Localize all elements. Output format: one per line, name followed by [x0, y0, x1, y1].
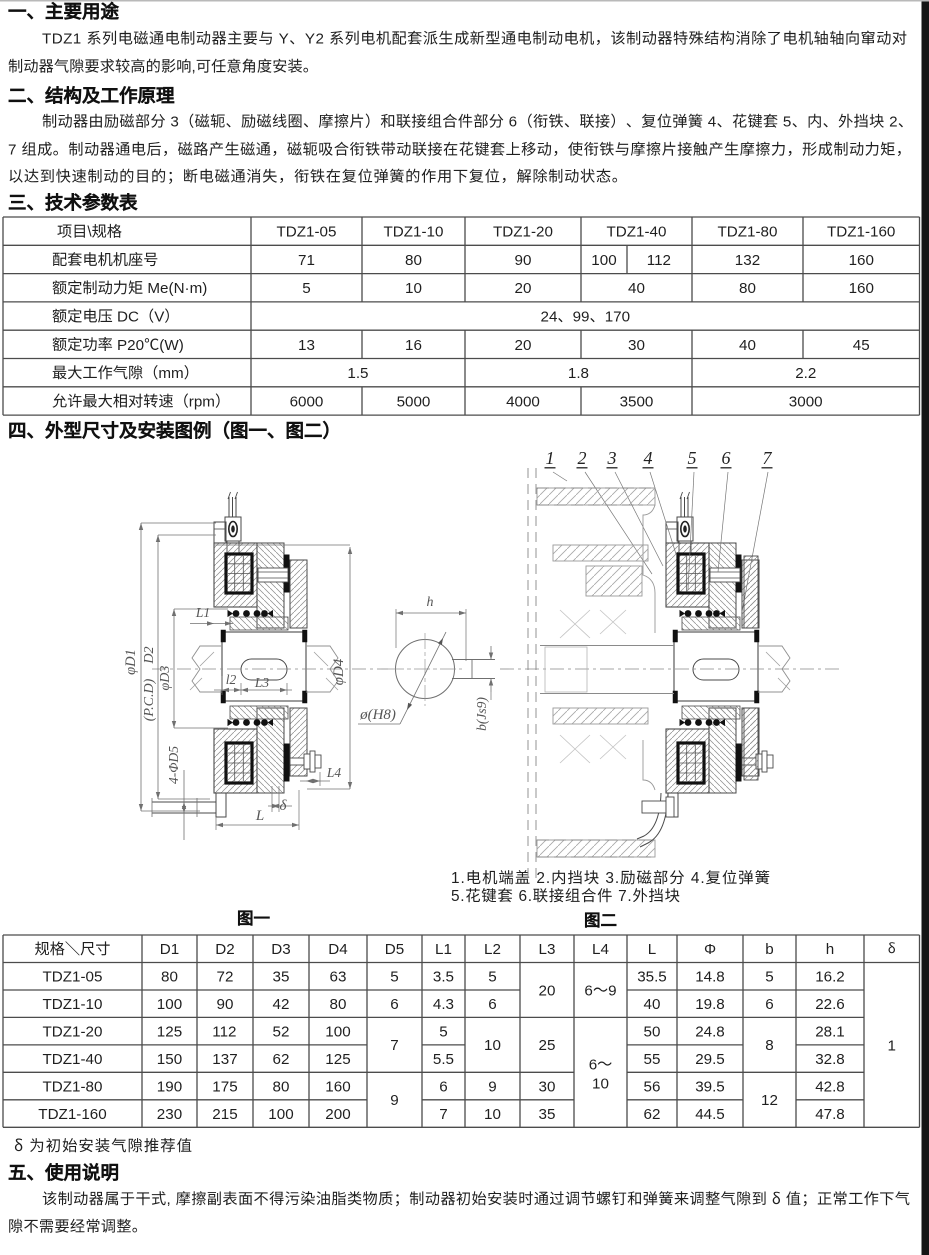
svg-text:L3: L3 [254, 675, 270, 690]
svg-text:80: 80 [405, 252, 422, 269]
svg-text:ø(H8): ø(H8) [359, 707, 396, 723]
svg-text:2.2: 2.2 [795, 365, 816, 382]
svg-text:132: 132 [735, 252, 760, 269]
svg-text:TDZ1-05: TDZ1-05 [43, 969, 103, 986]
svg-text:10: 10 [484, 1106, 501, 1123]
svg-text:7: 7 [439, 1106, 447, 1123]
svg-text:h: h [427, 595, 434, 610]
svg-text:5000: 5000 [397, 393, 431, 410]
svg-text:L1: L1 [195, 605, 210, 620]
svg-text:100: 100 [591, 252, 616, 269]
svg-text:62: 62 [644, 1106, 661, 1123]
svg-text:9: 9 [488, 1079, 496, 1096]
svg-text:40: 40 [739, 337, 756, 354]
svg-text:δ: δ [280, 798, 288, 814]
svg-text:200: 200 [325, 1106, 350, 1123]
svg-text:29.5: 29.5 [695, 1051, 725, 1068]
svg-text:13: 13 [298, 337, 315, 354]
svg-text:25: 25 [539, 1037, 556, 1054]
svg-text:125: 125 [157, 1024, 182, 1041]
svg-text:5.: 5. [451, 888, 465, 905]
svg-text:Φ: Φ [704, 941, 716, 958]
svg-text:TDZ1-160: TDZ1-160 [827, 224, 895, 241]
svg-text:20: 20 [539, 982, 556, 999]
svg-text:160: 160 [325, 1079, 350, 1096]
svg-text:4: 4 [644, 448, 653, 468]
svg-text:L1: L1 [435, 941, 452, 958]
svg-text:(P.C.D): (P.C.D) [142, 678, 157, 721]
svg-text:1.5: 1.5 [347, 365, 368, 382]
svg-text:6: 6 [584, 982, 592, 999]
svg-text:TDZ1: TDZ1 [42, 31, 86, 48]
svg-text:230: 230 [157, 1106, 182, 1123]
svg-text:112: 112 [212, 1024, 236, 1041]
svg-text:8: 8 [765, 1037, 773, 1054]
svg-text:D3: D3 [271, 941, 290, 958]
svg-text:4.3: 4.3 [433, 996, 454, 1013]
svg-text:4.: 4. [686, 870, 706, 887]
svg-text:3.: 3. [600, 870, 620, 887]
svg-text:9: 9 [608, 982, 616, 999]
svg-text:D2: D2 [215, 941, 234, 958]
svg-text:L3: L3 [539, 941, 556, 958]
svg-text:22.6: 22.6 [815, 996, 845, 1013]
svg-text:2: 2 [885, 114, 898, 131]
svg-text:5: 5 [688, 448, 697, 468]
svg-text:7: 7 [8, 142, 22, 159]
svg-text:5: 5 [488, 969, 496, 986]
svg-text:3: 3 [166, 114, 179, 131]
svg-text:Y: Y [274, 31, 289, 48]
svg-text:125: 125 [325, 1051, 350, 1068]
svg-text:32.8: 32.8 [815, 1051, 845, 1068]
svg-text:h: h [826, 941, 834, 958]
svg-text:112: 112 [647, 252, 671, 269]
svg-text:3: 3 [607, 448, 617, 468]
svg-text:39.5: 39.5 [695, 1079, 725, 1096]
svg-text:6: 6 [504, 114, 517, 131]
svg-text:5.5: 5.5 [433, 1051, 454, 1068]
svg-text:TDZ1-160: TDZ1-160 [38, 1106, 106, 1123]
svg-text:160: 160 [849, 252, 874, 269]
svg-text:56: 56 [644, 1079, 661, 1096]
svg-text:71: 71 [298, 252, 315, 269]
svg-text:137: 137 [212, 1051, 237, 1068]
svg-text:28.1: 28.1 [815, 1024, 845, 1041]
svg-text:9: 9 [390, 1092, 398, 1109]
svg-text:72: 72 [217, 969, 234, 986]
svg-text:1: 1 [546, 448, 555, 468]
svg-text:4: 4 [703, 114, 716, 131]
svg-text:45: 45 [853, 337, 870, 354]
svg-text:5: 5 [765, 969, 773, 986]
svg-text:100: 100 [325, 1024, 350, 1041]
svg-text:,: , [192, 59, 196, 76]
svg-text:L2: L2 [484, 941, 501, 958]
svg-text:(W): (W) [159, 337, 183, 354]
svg-text:42: 42 [273, 996, 290, 1013]
svg-text:6: 6 [439, 1079, 447, 1096]
svg-text:24.8: 24.8 [695, 1024, 725, 1041]
svg-text:7.: 7. [613, 888, 632, 905]
svg-text:35.5: 35.5 [637, 969, 667, 986]
svg-text:150: 150 [157, 1051, 182, 1068]
svg-text:6: 6 [488, 996, 496, 1013]
svg-text:Y2: Y2 [305, 31, 329, 48]
svg-text:100: 100 [157, 996, 182, 1013]
svg-text:1.8: 1.8 [568, 365, 589, 382]
svg-text:20: 20 [515, 337, 532, 354]
svg-text:,: , [167, 1191, 176, 1208]
svg-text:mm: mm [158, 365, 183, 382]
svg-text:3500: 3500 [620, 393, 654, 410]
svg-text:40: 40 [628, 280, 645, 297]
svg-text:TDZ1-10: TDZ1-10 [384, 224, 444, 241]
svg-text:5: 5 [302, 280, 310, 297]
svg-text:φD3: φD3 [158, 666, 173, 691]
svg-text:7: 7 [763, 448, 773, 468]
svg-text:16.2: 16.2 [815, 969, 845, 986]
svg-text:Me(N·m): Me(N·m) [143, 280, 207, 297]
svg-text:2.: 2. [531, 870, 551, 887]
svg-text:80: 80 [273, 1079, 290, 1096]
svg-text:6: 6 [589, 1056, 597, 1073]
svg-text:6000: 6000 [290, 393, 324, 410]
svg-text:19.8: 19.8 [695, 996, 725, 1013]
svg-text:2: 2 [578, 448, 587, 468]
svg-text:D2: D2 [142, 646, 157, 664]
svg-text:\: \ [87, 224, 92, 241]
svg-text:P20: P20 [113, 337, 144, 354]
svg-text:10: 10 [592, 1075, 609, 1092]
svg-text:6: 6 [722, 448, 731, 468]
svg-text:l2: l2 [226, 672, 237, 687]
svg-text:99: 99 [573, 308, 590, 325]
svg-text:3.5: 3.5 [433, 969, 454, 986]
svg-text:16: 16 [405, 337, 422, 354]
svg-text:35: 35 [273, 969, 290, 986]
svg-text:14.8: 14.8 [695, 969, 725, 986]
svg-text:TDZ1-05: TDZ1-05 [277, 224, 337, 241]
svg-text:24: 24 [541, 308, 558, 325]
svg-text:6: 6 [765, 996, 773, 1013]
svg-text:TDZ1-10: TDZ1-10 [43, 996, 103, 1013]
svg-text:190: 190 [157, 1079, 182, 1096]
svg-text:TDZ1-20: TDZ1-20 [43, 1024, 103, 1041]
svg-text:160: 160 [849, 280, 874, 297]
svg-text:L: L [648, 941, 656, 958]
svg-text:1.: 1. [451, 870, 466, 887]
svg-text:100: 100 [268, 1106, 293, 1123]
svg-text:6.: 6. [514, 888, 533, 905]
svg-text:90: 90 [217, 996, 234, 1013]
svg-text:D4: D4 [328, 941, 347, 958]
svg-text:44.5: 44.5 [695, 1106, 725, 1123]
svg-text:170: 170 [605, 308, 630, 325]
svg-text:D5: D5 [385, 941, 404, 958]
svg-text:47.8: 47.8 [815, 1106, 845, 1123]
svg-text:5: 5 [439, 1024, 447, 1041]
svg-text:DC: DC [113, 308, 139, 325]
svg-text:V: V [154, 308, 165, 325]
svg-text:90: 90 [515, 252, 532, 269]
svg-text:TDZ1-20: TDZ1-20 [493, 224, 553, 241]
svg-text:20: 20 [515, 280, 532, 297]
svg-text:175: 175 [212, 1079, 237, 1096]
svg-text:3000: 3000 [789, 393, 823, 410]
svg-text:5: 5 [390, 969, 398, 986]
svg-text:L4: L4 [592, 941, 609, 958]
svg-text:42.8: 42.8 [815, 1079, 845, 1096]
svg-text:30: 30 [628, 337, 645, 354]
svg-text:4-ΦD5: 4-ΦD5 [166, 746, 181, 784]
svg-text:1: 1 [888, 1037, 896, 1054]
svg-text:rpm: rpm [189, 393, 215, 410]
svg-text:4000: 4000 [506, 393, 540, 410]
svg-text:TDZ1-80: TDZ1-80 [43, 1079, 103, 1096]
svg-text:80: 80 [739, 280, 756, 297]
svg-text:10: 10 [405, 280, 422, 297]
svg-text:b(Js9): b(Js9) [474, 697, 489, 731]
svg-text:TDZ1-40: TDZ1-40 [43, 1051, 103, 1068]
svg-text:40: 40 [644, 996, 661, 1013]
svg-text:63: 63 [330, 969, 347, 986]
svg-text:12: 12 [761, 1092, 778, 1109]
svg-text:80: 80 [161, 969, 178, 986]
svg-text:215: 215 [212, 1106, 237, 1123]
svg-text:φD1: φD1 [123, 649, 139, 675]
svg-text:80: 80 [330, 996, 347, 1013]
svg-text:D1: D1 [160, 941, 179, 958]
svg-text:52: 52 [273, 1024, 290, 1041]
svg-text:30: 30 [539, 1079, 556, 1096]
svg-text:35: 35 [539, 1106, 556, 1123]
svg-text:TDZ1-80: TDZ1-80 [718, 224, 778, 241]
svg-text:TDZ1-40: TDZ1-40 [607, 224, 667, 241]
svg-text:b: b [765, 941, 773, 958]
svg-text:62: 62 [273, 1051, 290, 1068]
svg-text:50: 50 [644, 1024, 661, 1041]
svg-text:L4: L4 [326, 765, 342, 780]
svg-text:6: 6 [390, 996, 398, 1013]
svg-text:5: 5 [778, 114, 791, 131]
svg-text:10: 10 [484, 1037, 501, 1054]
svg-text:7: 7 [390, 1037, 398, 1054]
svg-text:L: L [255, 808, 264, 824]
svg-text:φD4: φD4 [331, 658, 347, 685]
svg-text:55: 55 [644, 1051, 661, 1068]
